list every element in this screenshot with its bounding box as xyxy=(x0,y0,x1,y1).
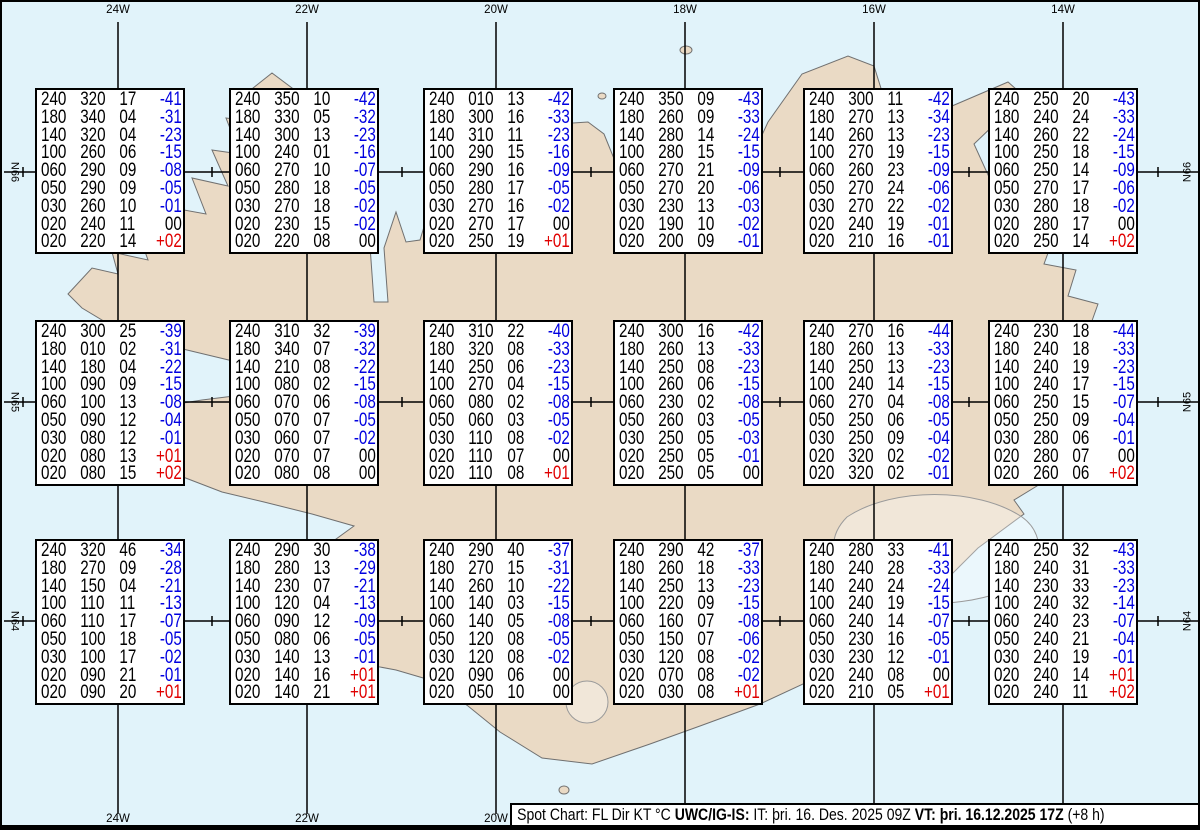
cell-temperature: 00 xyxy=(345,233,375,251)
cell-wind-direction: 090 xyxy=(80,684,107,702)
spot-row: 02021005+01 xyxy=(809,684,950,702)
spot-box-r2c1: 24030025-3918001002-3114018004-221000900… xyxy=(35,320,185,486)
cell-flight-level: 020 xyxy=(994,465,1021,483)
longitude-label-top: 22W xyxy=(295,4,319,16)
cell-wind-speed: 19 xyxy=(507,233,527,251)
cell-wind-speed: 15 xyxy=(119,465,139,483)
spot-box-r3c2: 24029030-3818028013-2914023007-211001200… xyxy=(229,539,379,705)
spot-box-r3c6: 24025032-4318024031-3314023033-231002403… xyxy=(988,539,1138,705)
spot-row: 02024011+02 xyxy=(994,684,1135,702)
cell-temperature: +02 xyxy=(1104,465,1134,483)
cell-temperature: 00 xyxy=(345,465,375,483)
cell-flight-level: 020 xyxy=(809,233,836,251)
spot-box-r3c3: 24029040-3718027015-3114026010-221001400… xyxy=(423,539,573,705)
footer-segment: (+8 h) xyxy=(1064,806,1105,824)
spot-box-r1c2: 24035010-4218033005-3214030013-231002400… xyxy=(229,88,379,254)
cell-wind-direction: 250 xyxy=(658,465,685,483)
spot-row: 02003008+01 xyxy=(619,684,760,702)
cell-temperature: +01 xyxy=(729,684,759,702)
spot-row: 02020009-01 xyxy=(619,233,760,251)
footer-segment: Spot Chart: FL Dir KT °C xyxy=(517,806,675,824)
longitude-label-bottom: 22W xyxy=(295,813,319,825)
latitude-label-left: N65 xyxy=(9,392,20,412)
spot-row: 02021016-01 xyxy=(809,233,950,251)
cell-temperature: -01 xyxy=(729,233,759,251)
footer-segment-bold: UWC/IG-IS: xyxy=(675,806,750,824)
cell-wind-speed: 10 xyxy=(507,684,527,702)
cell-wind-direction: 320 xyxy=(848,465,875,483)
cell-wind-speed: 05 xyxy=(697,465,717,483)
spot-row: 02026006+02 xyxy=(994,465,1135,483)
spot-row: 02022014+02 xyxy=(41,233,182,251)
cell-flight-level: 020 xyxy=(429,684,456,702)
cell-flight-level: 020 xyxy=(619,684,646,702)
footer-text: Spot Chart: FL Dir KT °C UWC/IG-IS: IT: … xyxy=(512,805,1200,826)
spot-box-r3c5: 24028033-4118024028-3314024024-241002401… xyxy=(803,539,953,705)
spot-box-r2c2: 24031032-3918034007-3214021008-221000800… xyxy=(229,320,379,486)
cell-wind-direction: 260 xyxy=(1033,465,1060,483)
latitude-label-right: N64 xyxy=(1183,611,1194,631)
spot-box-r1c5: 24030011-4218027013-3414026013-231002701… xyxy=(803,88,953,254)
spot-row: 0202200800 xyxy=(235,233,376,251)
spot-row: 02009020+01 xyxy=(41,684,182,702)
cell-wind-speed: 14 xyxy=(1072,233,1092,251)
cell-flight-level: 020 xyxy=(41,465,68,483)
cell-wind-direction: 250 xyxy=(1033,233,1060,251)
cell-temperature: +01 xyxy=(539,465,569,483)
island-grimsey xyxy=(680,46,692,54)
cell-wind-speed: 08 xyxy=(313,233,333,251)
footer-segment: IT: þri. 16. Des. 2025 09Z xyxy=(749,806,914,824)
island-drangey xyxy=(598,93,606,99)
cell-wind-direction: 210 xyxy=(848,233,875,251)
cell-flight-level: 020 xyxy=(809,684,836,702)
spot-box-r3c4: 24029042-3718026018-3314025013-231002200… xyxy=(613,539,763,705)
cell-temperature: +02 xyxy=(151,233,181,251)
cell-wind-direction: 080 xyxy=(274,465,301,483)
spot-box-r1c4: 24035009-4318026009-3314028014-241002801… xyxy=(613,88,763,254)
spot-chart-canvas: 24W22W20W18W16W14W24W22W20W18W16W14WN66N… xyxy=(0,0,1200,830)
spot-row: 0200800800 xyxy=(235,465,376,483)
cell-wind-speed: 16 xyxy=(887,233,907,251)
spot-box-r1c3: 24001013-4218030016-3314031011-231002901… xyxy=(423,88,573,254)
cell-wind-speed: 08 xyxy=(313,465,333,483)
cell-wind-speed: 09 xyxy=(697,233,717,251)
spot-row: 0202500500 xyxy=(619,465,760,483)
spot-box-r2c4: 24030016-4218026013-3314025008-231002600… xyxy=(613,320,763,486)
spot-row: 0200501000 xyxy=(429,684,570,702)
spot-row: 02032002-01 xyxy=(809,465,950,483)
cell-wind-speed: 14 xyxy=(119,233,139,251)
cell-flight-level: 020 xyxy=(41,233,68,251)
spot-box-r2c6: 24023018-4418024018-3314024019-231002401… xyxy=(988,320,1138,486)
cell-flight-level: 020 xyxy=(41,684,68,702)
cell-wind-speed: 21 xyxy=(313,684,333,702)
cell-temperature: -01 xyxy=(919,465,949,483)
cell-flight-level: 020 xyxy=(235,684,262,702)
cell-temperature: +01 xyxy=(919,684,949,702)
cell-wind-direction: 080 xyxy=(80,465,107,483)
longitude-label-top: 16W xyxy=(862,4,886,16)
cell-temperature: +01 xyxy=(151,684,181,702)
cell-wind-speed: 08 xyxy=(697,684,717,702)
spot-row: 02025019+01 xyxy=(429,233,570,251)
cell-temperature: +02 xyxy=(151,465,181,483)
cell-temperature: +01 xyxy=(539,233,569,251)
spot-box-r3c1: 24032046-3418027009-2814015004-211001101… xyxy=(35,539,185,705)
cell-wind-speed: 02 xyxy=(887,465,907,483)
island-vestmannaeyjar xyxy=(559,786,569,794)
cell-wind-direction: 140 xyxy=(274,684,301,702)
cell-temperature: +02 xyxy=(1104,233,1134,251)
longitude-label-top: 18W xyxy=(673,4,697,16)
spot-row: 02014021+01 xyxy=(235,684,376,702)
cell-flight-level: 020 xyxy=(619,465,646,483)
spot-row: 02025014+02 xyxy=(994,233,1135,251)
longitude-label-bottom: 24W xyxy=(106,813,130,825)
spot-box-r2c5: 24027016-4418026013-3314025013-231002401… xyxy=(803,320,953,486)
cell-flight-level: 020 xyxy=(429,465,456,483)
footer-bar: Spot Chart: FL Dir KT °C UWC/IG-IS: IT: … xyxy=(510,803,1200,827)
latitude-label-right: N65 xyxy=(1183,392,1194,412)
longitude-label-bottom: 20W xyxy=(484,813,508,825)
longitude-label-top: 20W xyxy=(484,4,508,16)
longitude-label-top: 14W xyxy=(1051,4,1075,16)
latitude-label-right: N66 xyxy=(1183,162,1194,182)
spot-box-r2c3: 24031022-4018032008-3314025006-231002700… xyxy=(423,320,573,486)
cell-temperature: -01 xyxy=(919,233,949,251)
cell-wind-direction: 220 xyxy=(274,233,301,251)
cell-wind-direction: 030 xyxy=(658,684,685,702)
cell-wind-direction: 250 xyxy=(468,233,495,251)
cell-wind-speed: 05 xyxy=(887,684,907,702)
cell-wind-direction: 110 xyxy=(468,465,495,483)
cell-wind-speed: 06 xyxy=(1072,465,1092,483)
cell-temperature: 00 xyxy=(729,465,759,483)
latitude-label-left: N64 xyxy=(9,611,20,631)
cell-wind-speed: 08 xyxy=(507,465,527,483)
cell-wind-direction: 210 xyxy=(848,684,875,702)
latitude-label-left: N66 xyxy=(9,162,20,182)
footer-segment-bold: VT: þri. 16.12.2025 17Z xyxy=(915,806,1064,824)
cell-flight-level: 020 xyxy=(235,465,262,483)
cell-flight-level: 020 xyxy=(809,465,836,483)
cell-flight-level: 020 xyxy=(235,233,262,251)
cell-flight-level: 020 xyxy=(619,233,646,251)
longitude-label-top: 24W xyxy=(106,4,130,16)
cell-flight-level: 020 xyxy=(994,684,1021,702)
cell-wind-direction: 200 xyxy=(658,233,685,251)
cell-flight-level: 020 xyxy=(994,233,1021,251)
spot-box-r1c6: 24025020-4318024024-3314026022-241002501… xyxy=(988,88,1138,254)
cell-wind-speed: 20 xyxy=(119,684,139,702)
cell-wind-direction: 220 xyxy=(80,233,107,251)
cell-temperature: 00 xyxy=(539,684,569,702)
cell-flight-level: 020 xyxy=(429,233,456,251)
spot-row: 02011008+01 xyxy=(429,465,570,483)
cell-temperature: +01 xyxy=(345,684,375,702)
cell-wind-speed: 11 xyxy=(1072,684,1092,702)
cell-temperature: +02 xyxy=(1104,684,1134,702)
spot-row: 02008015+02 xyxy=(41,465,182,483)
cell-wind-direction: 050 xyxy=(468,684,495,702)
cell-wind-direction: 240 xyxy=(1033,684,1060,702)
spot-box-r1c1: 24032017-4118034004-3114032004-231002600… xyxy=(35,88,185,254)
